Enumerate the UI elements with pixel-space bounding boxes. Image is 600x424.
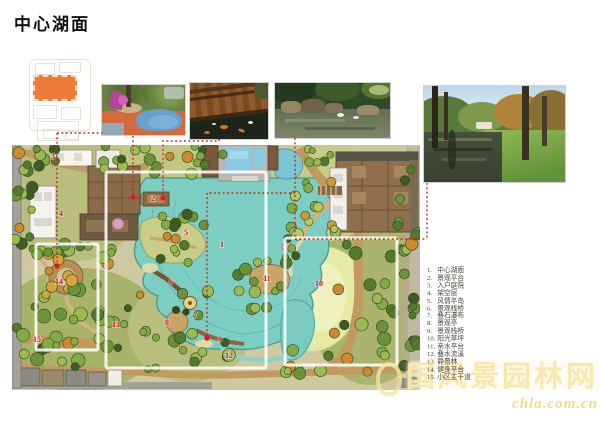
tree-symbol [304, 184, 313, 193]
tree-symbol [333, 284, 344, 295]
tree-symbol [140, 145, 151, 153]
tree-symbol [16, 328, 29, 341]
tree-symbol [301, 211, 310, 220]
tree-symbol [340, 320, 350, 330]
tree-symbol [33, 145, 40, 152]
tree-symbol [324, 351, 334, 361]
tree-symbol [331, 225, 338, 232]
legend-item: 14.健身平台 [427, 366, 529, 374]
legend-item: 3.入户庭院 [427, 282, 529, 290]
tree-symbol [30, 353, 43, 366]
legend-item: 11.亲水平台 [427, 343, 529, 351]
page: 中心湖面 [0, 0, 600, 424]
tree-symbol [342, 240, 351, 249]
tree-symbol [124, 305, 131, 312]
plan-marker: 5 [184, 228, 188, 237]
tree-symbol [71, 363, 79, 371]
tree-symbol [372, 293, 382, 303]
tree-symbol [91, 280, 101, 290]
tree-symbol [349, 247, 362, 260]
tree-symbol [198, 348, 207, 357]
tree-symbol [163, 232, 171, 240]
tree-symbol [305, 158, 314, 167]
tree-symbol [408, 293, 419, 304]
tree-symbol [290, 191, 300, 201]
tree-symbol [196, 152, 204, 160]
tree-symbol [12, 234, 20, 244]
legend-item: 12.叠水流溪 [427, 351, 529, 359]
tree-symbol [174, 332, 186, 344]
plan-marker: 1 [220, 240, 224, 249]
tree-symbol [314, 159, 322, 167]
plan-marker: 13 [112, 320, 120, 329]
legend-item: 2.景观平台 [427, 275, 529, 283]
tree-symbol [187, 328, 198, 339]
plan-marker: 3 [51, 152, 55, 161]
plan-marker: 6 [169, 277, 173, 286]
tree-symbol [294, 367, 306, 379]
tree-symbol [182, 209, 192, 219]
tree-symbol [200, 160, 209, 169]
tree-symbol [156, 254, 165, 263]
legend-item: 4.架空层 [427, 290, 529, 298]
tree-symbol [240, 263, 252, 275]
photo-rocky-pond [275, 83, 390, 138]
legend-item: 15.小区主干道 [427, 374, 529, 382]
tree-symbol [327, 151, 334, 158]
tree-symbol [131, 146, 141, 156]
tree-symbol [101, 145, 110, 151]
plan-marker: 4 [59, 209, 63, 218]
tree-symbol [250, 303, 260, 313]
tree-symbol [34, 161, 45, 172]
plan-marker: 10 [315, 279, 323, 288]
tree-symbol [57, 357, 66, 366]
tree-symbol [249, 277, 258, 286]
tree-symbol [399, 360, 410, 371]
tree-symbol [284, 368, 291, 375]
tree-symbol [28, 206, 36, 214]
tree-symbol [120, 320, 128, 328]
tree-symbol [287, 344, 299, 356]
tree-symbol [395, 194, 404, 203]
tree-symbol [190, 357, 200, 367]
keymap-highlight-area [33, 75, 77, 101]
tree-symbol [186, 168, 197, 179]
site-location-keymap [27, 57, 105, 145]
tree-symbol [218, 150, 227, 159]
plan-marker: 15 [33, 335, 41, 344]
tree-symbol [15, 223, 24, 232]
legend-item: 1.中心湖面 [427, 267, 529, 275]
tree-symbol [309, 148, 315, 154]
tree-symbol [249, 286, 261, 298]
tree-symbol [409, 312, 416, 319]
tree-symbol [66, 275, 78, 287]
tree-symbol [114, 344, 122, 352]
tree-symbol [399, 269, 409, 279]
tree-symbol [406, 165, 415, 174]
tree-symbol [179, 240, 189, 250]
legend-item: 9.景观栈桥 [427, 328, 529, 336]
master-plan: 123456789101112131415 [12, 145, 420, 390]
tree-symbol [158, 212, 167, 221]
tree-symbol [53, 254, 64, 265]
legend-item: 13.静景林 [427, 358, 529, 366]
plan-marker: 2 [151, 194, 155, 203]
photo-playground [102, 85, 185, 135]
plan-marker: 9 [218, 335, 222, 344]
tree-symbol [140, 328, 147, 335]
tree-symbol [152, 334, 159, 341]
legend-item: 10.阳光草坪 [427, 336, 529, 344]
plan-marker: 7 [193, 311, 197, 320]
tree-symbol [19, 349, 29, 359]
plan-legend: 1.中心湖面2.景观平台3.入户庭院4.架空层5.风情半岛6.景观栈桥7.叠石瀑… [427, 267, 587, 424]
tree-symbol [380, 279, 390, 289]
legend-item: 5.风情半岛 [427, 297, 529, 305]
tree-symbol [288, 245, 296, 253]
plan-marker: 14 [55, 277, 63, 286]
tree-symbol [410, 377, 418, 385]
tree-symbol [53, 342, 60, 349]
tree-symbol [13, 147, 25, 159]
tree-symbol [177, 288, 187, 298]
tree-symbol [191, 145, 199, 150]
tree-symbol [342, 353, 353, 364]
tree-symbol [45, 267, 53, 275]
tree-symbol [179, 346, 187, 354]
photo-koi-deck [190, 83, 268, 139]
tree-symbol [23, 161, 31, 169]
tree-symbol [287, 203, 297, 213]
tree-symbol [184, 258, 192, 266]
tree-symbol [170, 245, 178, 253]
tree-symbol [152, 162, 162, 172]
tree-symbol [234, 286, 244, 296]
tree-symbol [199, 220, 208, 229]
tree-symbol [202, 286, 213, 297]
tree-symbol [292, 252, 300, 260]
tree-symbol [376, 321, 388, 333]
tree-symbol [136, 291, 144, 299]
tree-symbol [71, 338, 79, 346]
plan-marker: 11 [263, 274, 271, 283]
tree-symbol [400, 176, 410, 186]
tree-symbol [37, 309, 51, 323]
tree-symbol [377, 332, 391, 346]
tree-symbol [171, 234, 180, 243]
tree-symbol [394, 221, 402, 229]
tree-symbol [363, 367, 372, 376]
tree-symbol [26, 233, 34, 241]
tree-symbol [169, 222, 178, 231]
tree-symbol [117, 155, 125, 163]
tree-symbol [14, 186, 24, 196]
tree-symbol [69, 315, 78, 324]
tree-symbol [411, 230, 420, 240]
photo-golf-pond [424, 86, 565, 182]
plan-marker: 12 [225, 351, 233, 360]
tree-symbol [166, 152, 174, 160]
tree-symbol [411, 338, 420, 350]
tree-symbol [409, 303, 417, 311]
tree-symbol [355, 318, 368, 331]
tree-symbol [44, 248, 53, 257]
tree-symbol [380, 351, 389, 360]
tree-symbol [253, 258, 261, 266]
tree-symbol [182, 151, 193, 162]
plan-marker: 8 [165, 318, 169, 327]
tree-symbol [327, 177, 336, 186]
tree-symbol [364, 279, 376, 291]
tree-symbol [329, 328, 339, 338]
tree-symbol [42, 291, 50, 299]
page-title: 中心湖面 [14, 10, 90, 35]
tree-symbol [54, 308, 66, 320]
tree-symbol [313, 202, 323, 212]
